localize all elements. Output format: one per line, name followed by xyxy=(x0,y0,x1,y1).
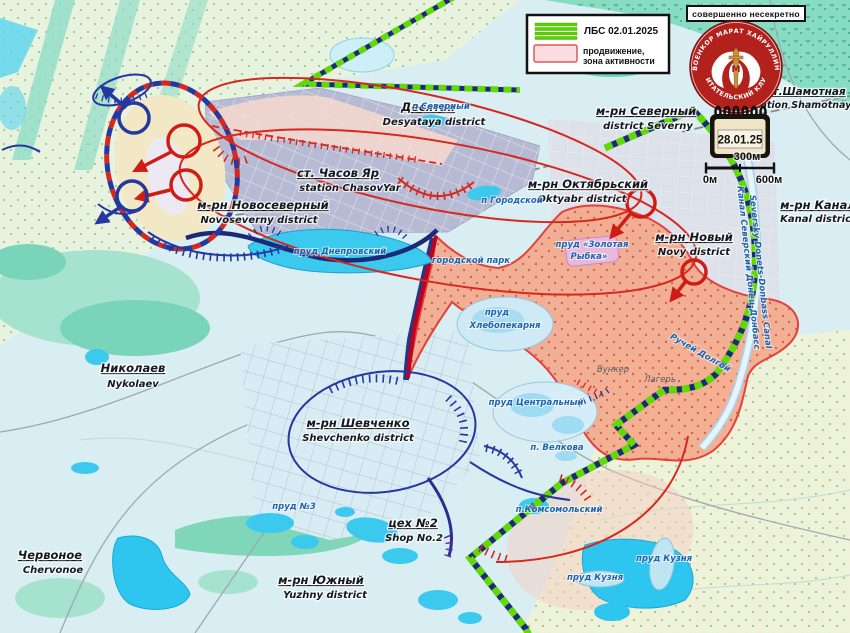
label-shamotnaya-ru: ст.Шамотная xyxy=(766,86,846,98)
label-pond-severny: п Северный xyxy=(412,102,470,112)
label-novy-en: Novy district xyxy=(658,247,731,258)
pond-bottom-2 xyxy=(458,612,482,624)
scale-zero-label: 0м xyxy=(703,174,717,186)
pond-south-small xyxy=(594,603,630,621)
emblem-monogram: М xyxy=(732,65,741,75)
label-chasovyar-en: station ChasovYar xyxy=(299,183,402,194)
pond-north xyxy=(330,38,394,72)
legend-advance-1: продвижение, xyxy=(583,46,644,56)
label-nykolaev-en: Nykolaev xyxy=(107,379,159,390)
label-nykolaev-ru: Николаев xyxy=(101,361,166,375)
label-severny-ru: м-рн Северный xyxy=(596,104,696,118)
label-lager: Лагерь xyxy=(643,375,676,385)
pond-no3b xyxy=(291,535,319,549)
calendar-date: 28.01.25 xyxy=(718,135,763,147)
scale-mid-label: 300м xyxy=(734,151,761,163)
label-pond-central: пруд Центральный xyxy=(489,398,584,408)
label-pond-gorodskoy: п Городской xyxy=(481,196,543,206)
forest-south-1 xyxy=(15,578,105,618)
legend: ЛБС 02.01.2025 продвижение, зона активно… xyxy=(527,15,669,73)
label-shevchenko-en: Shevchenko district xyxy=(302,433,415,444)
label-novoseverny-en: Novoseverny district xyxy=(200,215,318,226)
label-chervonoe-ru: Червоное xyxy=(18,548,82,562)
label-novoseverny-ru: м-рн Новосеверный xyxy=(197,198,328,212)
label-shevchenko-ru: м-рн Шевченко xyxy=(307,416,410,430)
label-pond-kuznya-east: пруд Кузня xyxy=(636,554,693,564)
forest-south-2 xyxy=(198,570,258,594)
label-kanal-en: Kanal district xyxy=(780,214,850,225)
advance-swatch xyxy=(534,45,577,62)
forest-west-2 xyxy=(60,300,210,356)
pond-no3 xyxy=(246,513,294,533)
label-oktyabr-ru: м-рн Октябрьский xyxy=(528,177,648,191)
situation-map: Десятая Desyataya district м-рн Северный… xyxy=(0,0,850,633)
pond-west-small-2 xyxy=(71,462,99,474)
label-yuzhny-en: Yuzhny district xyxy=(283,590,368,601)
pond-yuzhny-3 xyxy=(335,507,355,517)
scale-solid-half xyxy=(706,167,740,170)
label-pond-khleb-1: пруд xyxy=(485,308,509,318)
label-desyataya-en: Desyataya district xyxy=(383,117,487,128)
label-pond-khleb-2: Хлебопекарня xyxy=(469,320,541,331)
label-pond-dneprovsky: пруд Днепровский xyxy=(294,247,386,257)
label-chervonoe-en: Chervonoe xyxy=(23,565,84,576)
stamp-label: совершенно несекретно xyxy=(692,9,800,19)
label-pond-velkova: п. Велкова xyxy=(530,443,584,453)
classification-stamp: совершенно несекретно xyxy=(687,6,805,21)
label-novy-ru: м-рн Новый xyxy=(655,230,733,244)
pond-yuzhny-2 xyxy=(382,548,418,564)
pond-central-inner-2 xyxy=(552,416,584,434)
label-bunker: Бункер xyxy=(597,365,629,375)
label-pond-zolotaya-1: пруд «Золотая xyxy=(556,240,629,250)
map-canvas: Десятая Desyataya district м-рн Северный… xyxy=(0,0,850,633)
label-pond-komsomolsky: п.Комсомольский xyxy=(516,505,603,515)
label-tsekh2-ru: цех №2 xyxy=(388,516,438,530)
label-pond-zolotaya-2: Рыбка» xyxy=(571,251,608,262)
label-pond-kuznya-west: пруд Кузня xyxy=(567,573,624,583)
legend-lbs-label: ЛБС 02.01.2025 xyxy=(584,26,659,37)
label-yuzhny-ru: м-рн Южный xyxy=(278,573,364,587)
label-severny-en: district Severny xyxy=(603,121,693,132)
label-city-park: городской парк xyxy=(432,256,510,266)
label-pond-no3: пруд №3 xyxy=(272,502,316,512)
pond-bottom-1 xyxy=(418,590,458,610)
scale-max-label: 600м xyxy=(756,174,783,186)
legend-advance-2: зона активности xyxy=(583,56,655,66)
label-chasovyar-ru: ст. Часов Яр xyxy=(297,166,379,180)
label-tsekh2-en: Shop No.2 xyxy=(385,533,443,544)
label-kanal-ru: м-рн Канал xyxy=(780,198,850,212)
label-oktyabr-en: Oktyabr district xyxy=(537,194,627,205)
